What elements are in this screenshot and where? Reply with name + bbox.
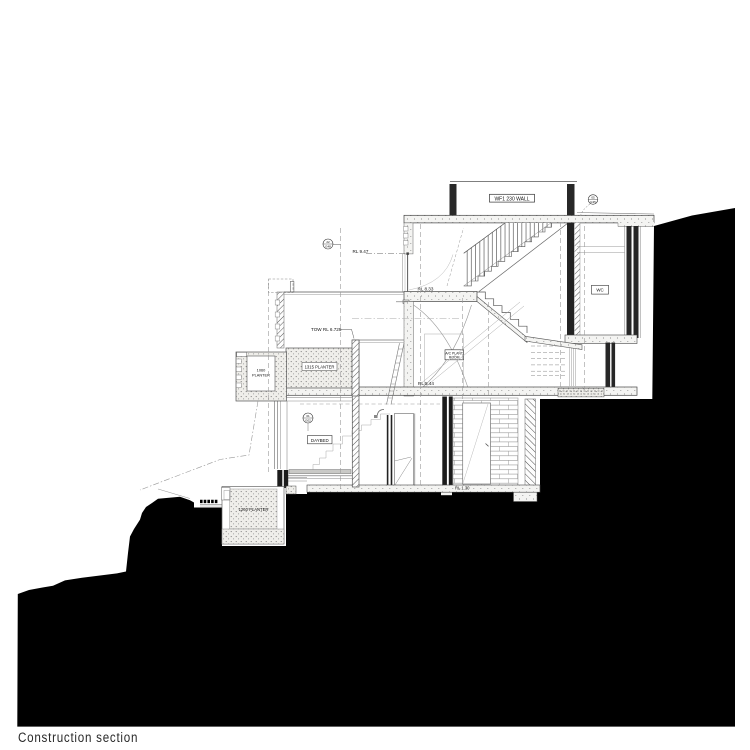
svg-text:RL 1.30: RL 1.30 bbox=[455, 486, 470, 491]
svg-text:WF1 230 WALL: WF1 230 WALL bbox=[494, 197, 529, 203]
svg-text:TOW RL 6.725: TOW RL 6.725 bbox=[311, 327, 342, 332]
svg-text:G48: G48 bbox=[325, 245, 331, 249]
svg-text:RL 9.47: RL 9.47 bbox=[353, 249, 369, 254]
svg-text:PLANTER: PLANTER bbox=[252, 372, 270, 377]
svg-text:1315 PLANTER: 1315 PLANTER bbox=[305, 365, 335, 370]
svg-text:G35: G35 bbox=[590, 200, 596, 204]
svg-text:G02: G02 bbox=[305, 419, 311, 423]
svg-text:WC: WC bbox=[596, 288, 603, 293]
svg-text:1260 PLANTER: 1260 PLANTER bbox=[239, 507, 269, 512]
svg-text:DAYBED: DAYBED bbox=[311, 438, 329, 443]
